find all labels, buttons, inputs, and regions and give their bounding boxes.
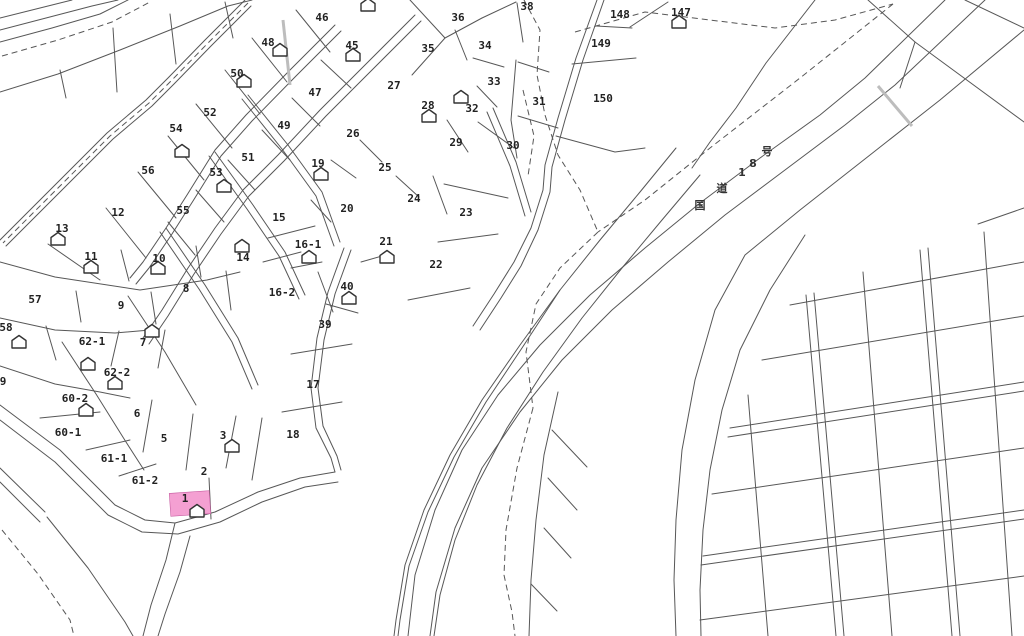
- parcel-label-19: 19: [311, 157, 324, 170]
- parcel-label-21: 21: [379, 235, 393, 248]
- parcel-label-148: 148: [610, 8, 630, 21]
- parcel-label-3: 3: [220, 429, 227, 442]
- map-canvas: 1 46484536385035341471481492728323331150…: [0, 0, 1024, 636]
- cadastral-map: 1 46484536385035341471481492728323331150…: [0, 0, 1024, 636]
- parcel-label-16-1: 16-1: [295, 238, 322, 251]
- parcel-label-49: 49: [277, 119, 290, 132]
- parcel-label-51: 51: [241, 151, 255, 164]
- parcel-label-10: 10: [152, 252, 165, 265]
- highlighted-parcel[interactable]: 1: [169, 491, 211, 517]
- parcel-label-26: 26: [346, 127, 360, 140]
- parcel-label-22: 22: [429, 258, 442, 271]
- route-18-char: 8: [749, 157, 757, 170]
- parcel-label-150: 150: [593, 92, 613, 105]
- parcel-label-7: 7: [140, 336, 147, 349]
- parcel-label-29: 29: [449, 136, 462, 149]
- route-18-char: 国: [695, 199, 706, 212]
- parcel-label-147: 147: [671, 6, 691, 19]
- parcel-label-16-2: 16-2: [269, 286, 296, 299]
- parcel-label-56: 56: [141, 164, 155, 177]
- parcel-label-53: 53: [209, 166, 222, 179]
- parcel-label-17: 17: [306, 378, 319, 391]
- route-18-char: 1: [738, 166, 746, 179]
- parcel-label-highlight: 1: [182, 492, 189, 505]
- parcel-label-45: 45: [345, 39, 358, 52]
- parcel-label-47: 47: [308, 86, 321, 99]
- house-icon: [361, 0, 375, 11]
- parcel-label-31: 31: [532, 95, 546, 108]
- parcel-label-62-2: 62-2: [104, 366, 131, 379]
- parcel-label-28: 28: [421, 99, 434, 112]
- parcel-label-61-1: 61-1: [101, 452, 128, 465]
- parcel-label-39: 39: [318, 318, 331, 331]
- parcel-label-5: 5: [161, 432, 168, 445]
- parcel-label-25: 25: [378, 161, 391, 174]
- route-18-char: 号: [762, 145, 773, 158]
- parcel-label-62-1: 62-1: [79, 335, 106, 348]
- parcel-label-35: 35: [421, 42, 434, 55]
- parcel-label-60-2: 60-2: [62, 392, 89, 405]
- route-18-char: 道: [717, 181, 728, 195]
- parcel-label-149: 149: [591, 37, 611, 50]
- parcel-label-11: 11: [84, 250, 98, 263]
- parcel-label-23: 23: [459, 206, 472, 219]
- parcel-label-58: 58: [0, 321, 13, 334]
- parcel-label-55: 55: [176, 204, 189, 217]
- parcel-label-2: 2: [201, 465, 208, 478]
- parcel-label-33: 33: [487, 75, 500, 88]
- parcel-label-6: 6: [134, 407, 141, 420]
- parcel-label-60-1: 60-1: [55, 426, 82, 439]
- parcel-label-57: 57: [28, 293, 41, 306]
- parcel-label-24: 24: [407, 192, 421, 205]
- parcel-label-52: 52: [203, 106, 216, 119]
- parcel-label-8: 8: [183, 282, 190, 295]
- parcel-label-12: 12: [111, 206, 124, 219]
- parcel-label-40: 40: [340, 280, 353, 293]
- parcel-label-32: 32: [465, 102, 478, 115]
- parcel-label-14: 14: [236, 251, 250, 264]
- parcel-label-46: 46: [315, 11, 329, 24]
- parcel-label-9: 9: [118, 299, 125, 312]
- parcel-label-61-2: 61-2: [132, 474, 159, 487]
- parcel-label-50: 50: [230, 67, 243, 80]
- parcel-label-48: 48: [261, 36, 274, 49]
- parcel-label-18: 18: [286, 428, 299, 441]
- parcel-label-20: 20: [340, 202, 353, 215]
- parcel-label-9: 9: [0, 375, 6, 388]
- parcel-label-27: 27: [387, 79, 400, 92]
- parcel-label-15: 15: [272, 211, 285, 224]
- parcel-label-54: 54: [169, 122, 183, 135]
- parcel-label-36: 36: [451, 11, 465, 24]
- parcel-label-38: 38: [520, 0, 533, 13]
- parcel-label-30: 30: [506, 139, 519, 152]
- parcel-label-13: 13: [55, 222, 68, 235]
- parcel-label-34: 34: [478, 39, 492, 52]
